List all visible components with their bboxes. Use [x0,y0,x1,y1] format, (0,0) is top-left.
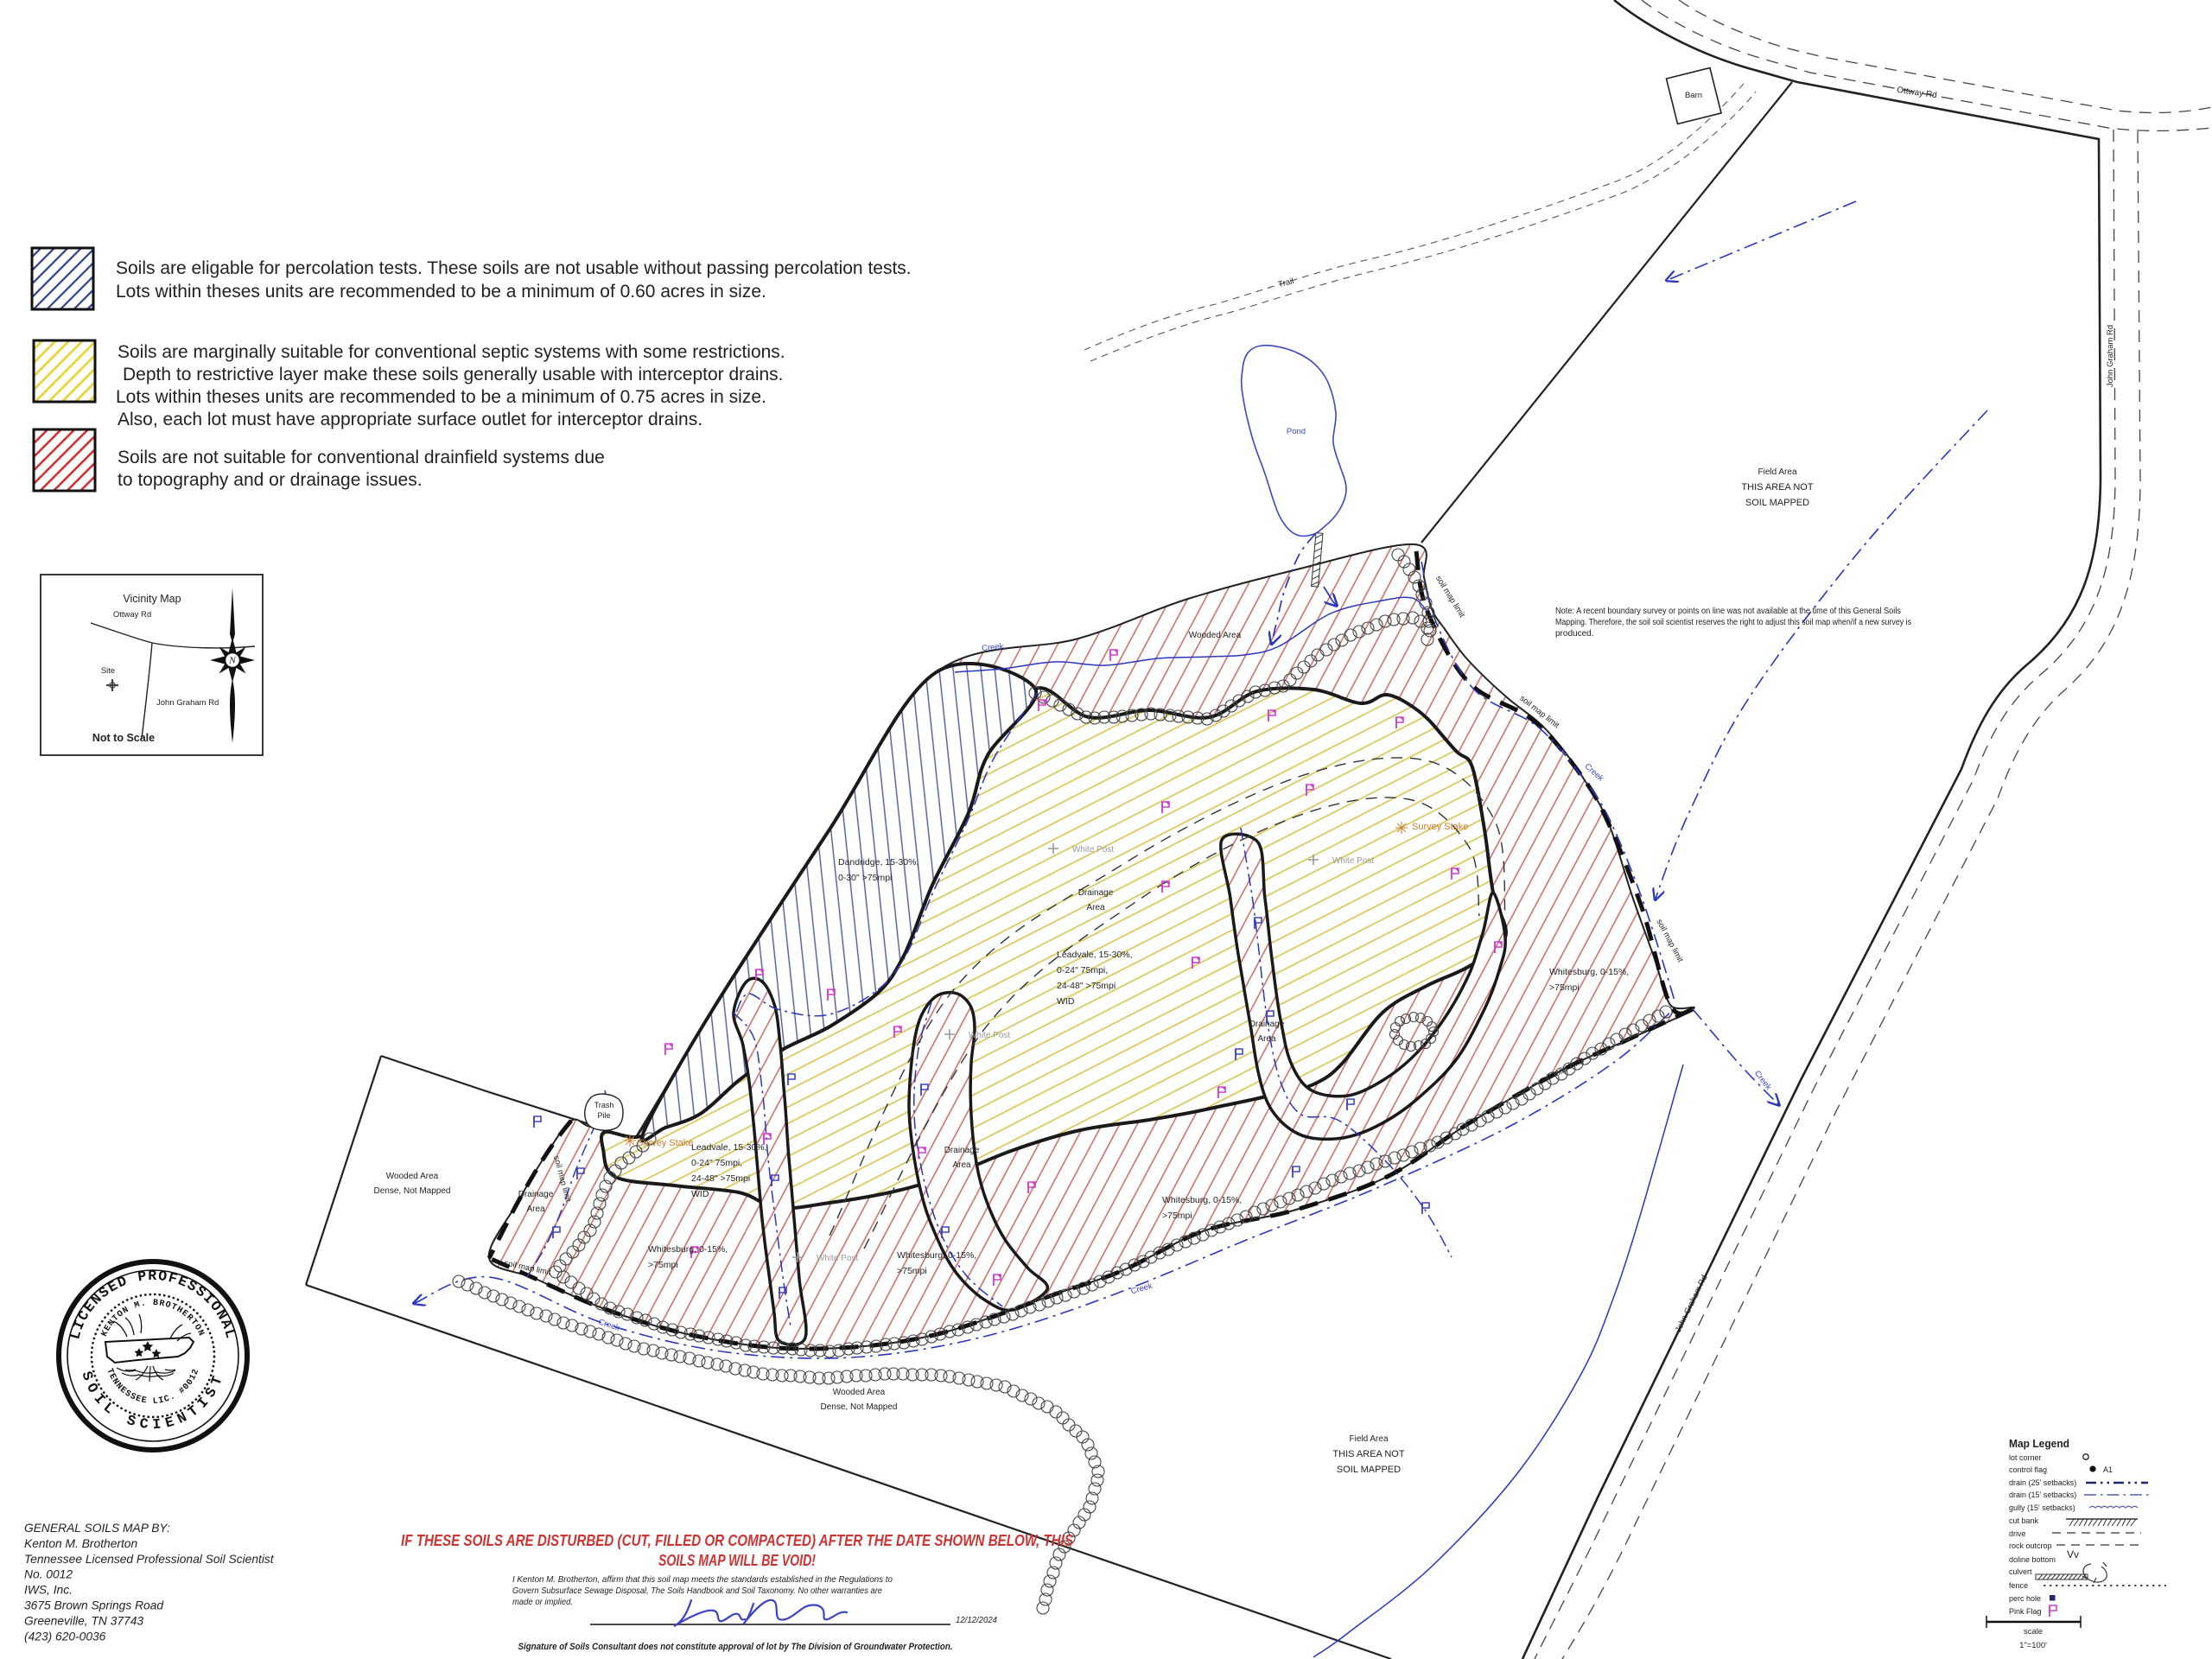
svg-text:Soils are not suitable for con: Soils are not suitable for conventional … [118,448,605,467]
svg-text:John Graham Rd: John Graham Rd [1674,1274,1710,1334]
svg-text:John Graham Rd: John Graham Rd [2106,325,2115,387]
svg-text:Site: Site [101,666,115,676]
svg-text:12/12/2024: 12/12/2024 [956,1616,997,1625]
svg-text:WID: WID [1057,996,1075,1007]
svg-text:control flag: control flag [2009,1465,2047,1474]
svg-text:>75mpi: >75mpi [897,1266,927,1276]
svg-text:Ottway Rd: Ottway Rd [1896,86,1937,100]
svg-text:soil map limit: soil map limit [1433,574,1467,620]
svg-text:24-48" >75mpi: 24-48" >75mpi [691,1173,750,1184]
svg-text:Depth to restrictive layer mak: Depth to restrictive layer make these so… [123,365,784,385]
svg-text:White Post: White Post [817,1254,859,1263]
svg-text:24-48" >75mpi: 24-48" >75mpi [1057,981,1116,991]
svg-text:produced.: produced. [1555,629,1593,639]
svg-text:Dense, Not Mapped: Dense, Not Mapped [821,1402,898,1412]
svg-text:Drainage: Drainage [1249,1020,1285,1029]
svg-text:Area: Area [1257,1034,1276,1044]
svg-text:Lots within theses units are r: Lots within theses units are recommended… [116,282,766,302]
svg-text:Soils are marginally suitable: Soils are marginally suitable for conven… [118,342,785,362]
svg-text:No. 0012: No. 0012 [24,1568,73,1581]
svg-text:Field Area: Field Area [1349,1434,1388,1444]
svg-text:Whitesburg, 0-15%,: Whitesburg, 0-15%, [1162,1195,1242,1205]
svg-text:Wooded Area: Wooded Area [833,1388,886,1397]
svg-text:Vv: Vv [2067,1548,2079,1560]
svg-text:Whitesburg, 0-15%,: Whitesburg, 0-15%, [648,1244,728,1255]
svg-text:Drainage: Drainage [518,1190,554,1199]
svg-text:Not to Scale: Not to Scale [92,732,155,744]
svg-text:Pile: Pile [597,1111,610,1120]
svg-text:Mapping. Therefore, the soil s: Mapping. Therefore, the soil soil scient… [1555,618,1911,627]
svg-text:SOILS MAP WILL BE VOID!: SOILS MAP WILL BE VOID! [658,1552,816,1569]
svg-text:A1: A1 [2103,1465,2113,1474]
svg-text:Note: A recent boundary survey: Note: A recent boundary survey or points… [1555,607,1901,616]
svg-text:0-30" >75mpi: 0-30" >75mpi [838,873,892,883]
svg-text:Vicinity Map: Vicinity Map [123,593,181,605]
svg-text:made or implied.: made or implied. [512,1597,573,1607]
svg-text:rock outcrop: rock outcrop [2009,1541,2052,1550]
svg-text:Ottway Rd: Ottway Rd [113,610,151,620]
svg-text:Greeneville, TN 37743: Greeneville, TN 37743 [24,1614,143,1627]
svg-text:Wooded Area: Wooded Area [386,1172,439,1181]
svg-text:John Graham Rd: John Graham Rd [156,698,219,708]
svg-text:GENERAL SOILS MAP BY:: GENERAL SOILS MAP BY: [24,1522,170,1535]
svg-text:perc hole: perc hole [2009,1594,2041,1603]
svg-text:drive: drive [2009,1529,2026,1538]
svg-text:THIS AREA NOT: THIS AREA NOT [1741,482,1813,493]
svg-text:>75mpi: >75mpi [648,1260,678,1270]
svg-text:Dense, Not Mapped: Dense, Not Mapped [374,1186,451,1196]
svg-text:Soils are eligable for percola: Soils are eligable for percolation tests… [116,258,912,278]
svg-text:Lots within theses units are r: Lots within theses units are recommended… [116,387,766,407]
svg-text:White Post: White Post [969,1031,1011,1040]
svg-text:Pink Flag: Pink Flag [2009,1607,2042,1616]
svg-text:to topography and or drainage: to topography and or drainage issues. [118,470,423,490]
svg-text:Leadvale, 15-30%,: Leadvale, 15-30%, [691,1142,767,1153]
svg-text:IF THESE SOILS ARE DISTURBED (: IF THESE SOILS ARE DISTURBED (CUT, FILLE… [401,1532,1073,1549]
svg-text:>75mpi: >75mpi [1549,982,1580,993]
svg-text:Survey Stake: Survey Stake [637,1138,693,1148]
svg-text:1"=100': 1"=100' [2019,1641,2047,1650]
svg-text:Trail: Trail [1277,276,1294,289]
svg-text:Creek: Creek [1130,1281,1154,1297]
svg-text:Whitesburg, 0-15%,: Whitesburg, 0-15%, [1549,967,1629,977]
svg-text:Dandridge, 15-30%,: Dandridge, 15-30%, [838,857,918,868]
svg-text:KENTON M. BROTHERTON: KENTON M. BROTHERTON [100,1299,206,1338]
svg-text:0-24" 75mpi,: 0-24" 75mpi, [1057,965,1108,976]
svg-text:Govern Subsurface Sewage Dispo: Govern Subsurface Sewage Disposal, The S… [512,1586,882,1596]
svg-text:Pond: Pond [1287,427,1306,436]
svg-text:Trash: Trash [594,1101,614,1109]
svg-text:White Post: White Post [1072,845,1115,855]
svg-text:White Post: White Post [1332,856,1375,866]
svg-text:0-24" 75mpi,: 0-24" 75mpi, [691,1158,742,1168]
svg-text:doline bottom: doline bottom [2009,1555,2056,1564]
svg-text:Field Area: Field Area [1758,467,1796,477]
svg-text:Wooded Area: Wooded Area [1189,631,1242,640]
svg-text:Creek: Creek [597,1317,621,1332]
svg-text:drain (25' setbacks): drain (25' setbacks) [2009,1478,2076,1487]
svg-text:Survey Stake: Survey Stake [1412,822,1468,832]
svg-text:N: N [228,656,236,666]
svg-text:>75mpi: >75mpi [1162,1211,1192,1221]
svg-text:gully (15' setbacks): gully (15' setbacks) [2009,1503,2075,1512]
svg-text:Tennessee Licensed Professiona: Tennessee Licensed Professional Soil Sci… [24,1553,275,1566]
svg-text:fence: fence [2009,1581,2028,1590]
svg-text:lot corner: lot corner [2009,1453,2042,1462]
svg-text:Leadvale, 15-30%,: Leadvale, 15-30%, [1057,950,1133,960]
svg-text:cut bank: cut bank [2009,1516,2039,1525]
svg-text:3675 Brown Springs Road: 3675 Brown Springs Road [24,1599,164,1612]
svg-text:drain (15' setbacks): drain (15' setbacks) [2009,1491,2076,1499]
svg-text:Creek: Creek [1752,1069,1773,1092]
svg-text:SOIL MAPPED: SOIL MAPPED [1745,498,1809,508]
svg-text:IWS, Inc.: IWS, Inc. [24,1584,73,1597]
svg-text:Area: Area [1086,903,1105,912]
svg-text:Map Legend: Map Legend [2009,1438,2069,1450]
svg-text:Barn: Barn [1685,91,1702,100]
svg-text:culvert: culvert [2009,1567,2032,1576]
svg-text:Creek: Creek [1583,762,1605,784]
svg-text:Drainage: Drainage [944,1146,980,1155]
svg-text:Area: Area [952,1160,971,1170]
svg-text:Whitesburg, 0-15%,: Whitesburg, 0-15%, [897,1250,976,1261]
svg-text:Also, each lot must have appro: Also, each lot must have appropriate sur… [118,410,702,429]
svg-text:Signature of Soils Consultant: Signature of Soils Consultant does not c… [518,1642,953,1652]
svg-text:Kenton M. Brotherton: Kenton M. Brotherton [24,1537,137,1550]
svg-text:I Kenton M. Brotherton, affirm: I Kenton M. Brotherton, affirm that this… [512,1574,893,1585]
svg-text:scale: scale [2024,1627,2043,1637]
svg-text:soil map limit: soil map limit [1654,918,1685,964]
svg-text:Creek: Creek [982,642,1004,653]
svg-text:(423) 620-0036: (423) 620-0036 [24,1630,106,1643]
svg-text:SOIL MAPPED: SOIL MAPPED [1337,1465,1401,1475]
svg-text:WID: WID [691,1189,709,1199]
svg-text:Area: Area [526,1205,545,1214]
svg-text:THIS AREA NOT: THIS AREA NOT [1332,1449,1404,1459]
svg-text:Drainage: Drainage [1078,888,1114,898]
